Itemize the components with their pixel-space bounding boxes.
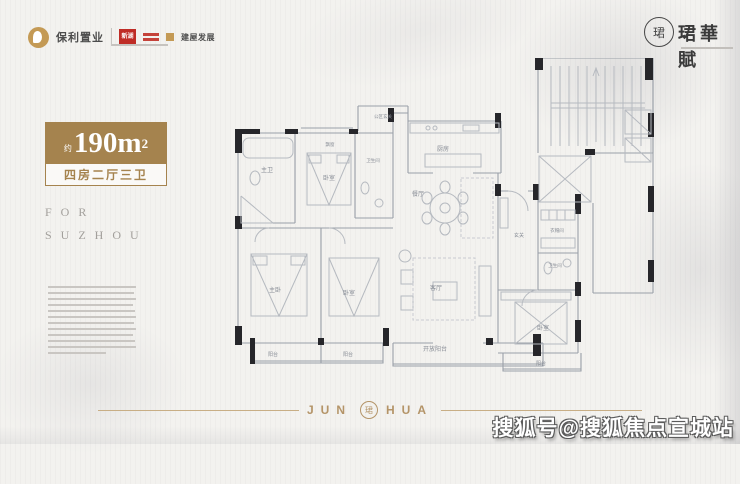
shower [241, 196, 273, 223]
footer-line-left [98, 410, 299, 411]
area-badge: 约 190m 2 四房二厅三卫 [45, 122, 167, 186]
toilet [250, 171, 260, 185]
poly-logo-label: 保利置业 [56, 29, 104, 45]
footer-brand-left: JUN [307, 403, 352, 417]
brand-name: 珺華賦 [678, 20, 740, 72]
xinhu-logo-icon: 新湖 [119, 29, 136, 46]
jianwu-logo-label: 建屋发展 [181, 32, 215, 43]
bed-master [251, 254, 307, 316]
rug-dashed [413, 178, 493, 320]
bed-bedroom-bottom [329, 258, 379, 316]
slogan-line-2: SUZHOU [45, 228, 148, 243]
label-cloakroom: 衣帽间 [550, 227, 564, 234]
area-value: 190m [74, 129, 142, 158]
label-balcony-right: 阳台 [536, 360, 546, 367]
label-bedroom-top: 卧室 [323, 174, 335, 182]
label-kitchen: 厨房 [437, 145, 449, 153]
label-bedroom-bottom: 卧室 [343, 289, 355, 297]
label-open-balcony: 开放阳台 [423, 345, 447, 353]
logo-fine-print [112, 44, 168, 46]
area-prefix: 约 [64, 143, 72, 154]
label-living: 客厅 [430, 284, 442, 292]
footer-seal-icon: 珺 [360, 401, 378, 419]
label-bay-window: 飘窗 [326, 141, 335, 148]
xinhu-logo-subtext [143, 33, 159, 41]
room-labels: 公区玄关 厨房 餐厅 客厅 开放阳台 主卫 飘窗 卧室 卫生间 主卧 卧室 阳台… [261, 113, 564, 367]
furniture [241, 66, 651, 344]
elevator [539, 156, 591, 202]
developer-logos: 保利置业 新湖 建屋发展 [28, 22, 215, 52]
label-balcony-mid: 阳台 [343, 351, 353, 358]
area-superscript: 2 [142, 136, 149, 152]
footer-brand-right: HUA [386, 403, 433, 417]
brand-tagline [681, 47, 733, 49]
bathtub [243, 138, 293, 158]
watermark: 搜狐号@搜狐焦点宣城站 [493, 412, 734, 442]
label-public-foyer: 公区玄关 [374, 113, 392, 120]
label-bath-top: 卫生间 [366, 157, 380, 164]
kitchen-island [425, 154, 481, 167]
label-bedroom-right: 卧室 [537, 324, 549, 332]
slogan-line-1: FOR [45, 205, 95, 220]
label-bath-right: 卫生间 [548, 262, 562, 269]
walls-piers [235, 58, 654, 364]
floor-plan: 公区玄关 厨房 餐厅 客厅 开放阳台 主卫 飘窗 卧室 卫生间 主卧 卧室 阳台… [233, 58, 667, 376]
label-dining: 餐厅 [412, 190, 424, 198]
footer-line-right [441, 410, 642, 411]
label-master-bath: 主卫 [261, 166, 273, 174]
jianwu-logo-icon [166, 33, 174, 41]
brand-seal-icon: 珺 [644, 17, 674, 47]
label-balcony-left: 阳台 [268, 351, 278, 358]
walls-thin [238, 58, 653, 371]
label-entry: 玄关 [514, 232, 524, 239]
label-master-bedroom: 主卧 [269, 286, 281, 294]
area-badge-top: 约 190m 2 [46, 123, 166, 164]
layout-text: 四房二厅三卫 [46, 164, 166, 185]
disclaimer-text [48, 286, 140, 358]
poly-logo-icon [28, 27, 49, 48]
